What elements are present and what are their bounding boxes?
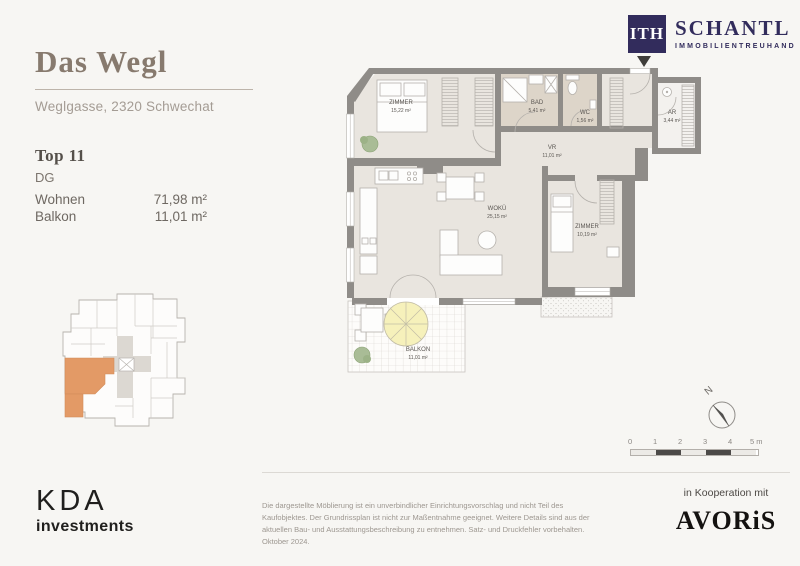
kooperation-label: in Kooperation mit	[655, 487, 797, 499]
room-label-zimmer1: ZIMMER	[389, 100, 413, 106]
shelving	[682, 85, 694, 146]
room-label-wc: WC	[580, 110, 591, 116]
highlighted-unit-balcony	[65, 394, 83, 417]
wc-sink	[590, 100, 596, 109]
disclaimer-text: Die dargestellte Möblierung ist ein unve…	[262, 500, 610, 548]
area-row: Wohnen 71,98 m²	[35, 192, 207, 209]
washbasin	[529, 75, 543, 84]
project-address: Weglgasse, 2320 Schwechat	[35, 99, 253, 114]
dining-table	[446, 177, 474, 199]
schantl-wordmark: SCHANTL	[675, 18, 796, 39]
nightstand	[607, 247, 619, 257]
ith-schantl-logo: ITH SCHANTL IMMOBILIENTREUHAND	[628, 15, 796, 53]
room-area-wc: 1,56 m²	[577, 118, 594, 124]
scale-tick: 2	[678, 437, 682, 446]
kda-subtitle: investments	[36, 518, 134, 536]
room-area-ar: 3,44 m²	[664, 118, 681, 124]
room-label-zimmer2: ZIMMER	[575, 224, 599, 230]
room-area-bad: 5,41 m²	[529, 108, 546, 114]
schantl-subtitle: IMMOBILIENTREUHAND	[675, 43, 796, 50]
toilet-tank	[566, 75, 579, 80]
area-table: Wohnen 71,98 m² Balkon 11,01 m²	[35, 192, 207, 226]
room-area-vr: 11,01 m²	[542, 153, 562, 159]
scale-bar: 0 1 2 3 4 5 m	[630, 437, 780, 461]
entrance-arrow-icon	[637, 56, 651, 67]
scale-tick: 0	[628, 437, 632, 446]
balcony-table	[361, 308, 383, 332]
kda-logo: KDA investments	[36, 487, 134, 536]
north-compass-icon: N	[692, 383, 752, 435]
area-label: Balkon	[35, 209, 76, 226]
coffee-table	[478, 231, 496, 249]
area-row: Balkon 11,01 m²	[35, 209, 207, 226]
neighbour-terrace	[541, 297, 612, 317]
sofa	[440, 230, 458, 257]
apartment-floor-plan: ZIMMER 15,22 m² BAD 5,41 m² WC 1,56 m² A…	[345, 52, 705, 377]
fridge	[360, 256, 377, 274]
parasol	[384, 302, 428, 346]
room-label-bad: BAD	[531, 100, 544, 106]
scale-tick: 1	[653, 437, 657, 446]
scale-tick: 4	[728, 437, 732, 446]
room-label-wokue: WOKÜ	[488, 205, 507, 212]
toilet	[568, 82, 577, 95]
area-value: 71,98 m²	[154, 192, 207, 209]
area-value: 11,01 m²	[155, 209, 207, 226]
unit-block: Top 11 DG	[35, 146, 85, 185]
avoris-wordmark: AVORiS	[655, 506, 797, 536]
wardrobe	[442, 78, 458, 126]
room-label-ar: AR	[668, 110, 677, 116]
room-area-zimmer1: 15,22 m²	[391, 108, 411, 114]
north-label: N	[703, 385, 716, 398]
title-block: Das Wegl Weglgasse, 2320 Schwechat	[35, 44, 253, 114]
room-label-vr: VR	[548, 145, 557, 151]
footer-divider	[262, 472, 790, 473]
ith-monogram-icon: ITH	[628, 15, 666, 53]
building-overview-plan	[57, 286, 192, 434]
room-area-wokue: 25,15 m²	[487, 214, 507, 220]
unit-floor: DG	[35, 170, 85, 185]
scale-tick: 5 m	[750, 437, 763, 446]
floorplan-sheet: Das Wegl Weglgasse, 2320 Schwechat Top 1…	[0, 0, 800, 566]
room-area-balkon: 11,01 m²	[408, 355, 428, 361]
unit-name: Top 11	[35, 146, 85, 166]
avoris-logo: in Kooperation mit AVORiS	[655, 487, 797, 536]
room-label-balkon: BALKON	[406, 347, 430, 353]
scale-tick-labels: 0 1 2 3 4 5 m	[630, 437, 780, 447]
page-title: Das Wegl	[35, 44, 253, 90]
scale-strip	[630, 449, 759, 456]
kda-wordmark: KDA	[36, 487, 134, 516]
sofa	[440, 255, 502, 275]
scale-tick: 3	[703, 437, 707, 446]
hall-wardrobe	[610, 78, 623, 128]
area-label: Wohnen	[35, 192, 85, 209]
room-area-zimmer2: 10,19 m²	[577, 232, 597, 238]
wardrobe	[600, 180, 614, 224]
mini-plan-stair-core	[119, 358, 134, 371]
wardrobe	[475, 78, 493, 126]
